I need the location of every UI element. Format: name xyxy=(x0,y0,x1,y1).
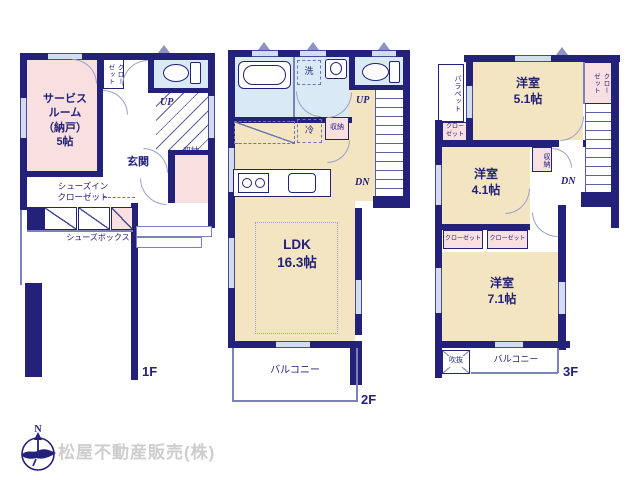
balcony-rail xyxy=(232,348,234,402)
door-gap xyxy=(559,140,583,147)
shoe-box xyxy=(111,207,133,230)
laundry-label: 洗 xyxy=(297,66,321,80)
up-label: UP xyxy=(356,95,369,106)
wall xyxy=(25,283,42,377)
window xyxy=(495,341,523,348)
window-marker xyxy=(158,45,170,53)
bathtub-icon xyxy=(243,65,286,85)
wall xyxy=(228,50,235,348)
dn-label: DN xyxy=(561,176,575,187)
floor-label-3f: 3F xyxy=(563,364,578,379)
wall xyxy=(581,192,618,207)
window xyxy=(435,165,442,205)
window-marker xyxy=(307,42,319,50)
closet-left-label: クロー ゼット xyxy=(442,124,468,140)
shoes-closet-label: シューズイン クローゼット xyxy=(44,181,122,203)
stairs-3f xyxy=(585,104,611,198)
balcony-rail xyxy=(356,348,358,401)
void-label: 吹抜 xyxy=(443,356,469,367)
closet-a-label: クローゼット xyxy=(443,236,483,246)
storage-3f-label: 収納 xyxy=(533,150,551,170)
shoe-box xyxy=(78,207,110,230)
wall xyxy=(27,171,103,177)
shoe-box xyxy=(44,207,77,230)
room-5-1-label: 洋室 5.1帖 xyxy=(498,76,558,112)
closet-label: クロー ゼット xyxy=(104,60,124,89)
entry-step xyxy=(136,237,202,248)
toilet-icon xyxy=(389,61,400,83)
window xyxy=(372,50,396,57)
wall xyxy=(558,205,566,350)
floor-label-1f: 1F xyxy=(142,364,157,379)
stove-icon xyxy=(238,173,269,193)
wall xyxy=(355,85,410,90)
storage-label: 収納 xyxy=(176,146,206,158)
balcony-label: バルコニー xyxy=(478,354,554,366)
toilet-icon xyxy=(362,63,389,81)
storage-1f xyxy=(175,155,208,203)
wall-line xyxy=(293,57,295,117)
window xyxy=(466,86,473,118)
service-room-label: サービス ルーム （納戸） 5帖 xyxy=(28,92,102,156)
window xyxy=(20,98,27,138)
window xyxy=(435,268,442,313)
balcony-rail xyxy=(232,400,358,402)
parapet-label: パラペット xyxy=(440,68,462,120)
wall-line xyxy=(27,230,133,232)
closet-tr-label: クロー ゼット xyxy=(586,64,610,102)
compass-icon: N xyxy=(12,423,64,477)
window xyxy=(208,96,215,138)
balcony-rail xyxy=(471,372,558,374)
kitchen-sink-icon xyxy=(288,173,316,193)
wall xyxy=(442,224,530,230)
floorplan-canvas: サービス ルーム （納戸） 5帖 クロー ゼット 玄関 収納 UP シューズイン… xyxy=(0,0,640,480)
wall xyxy=(435,120,442,378)
wall xyxy=(355,208,362,335)
dn-label: DN xyxy=(355,177,369,188)
sink-icon xyxy=(330,62,342,75)
window xyxy=(558,282,566,314)
window xyxy=(300,50,326,57)
room-4-1-label: 洋室 4.1帖 xyxy=(456,167,516,203)
fridge-label: 冷 xyxy=(297,125,322,139)
toilet-icon xyxy=(163,64,189,82)
wall xyxy=(208,53,215,228)
wall xyxy=(27,207,44,230)
window-marker xyxy=(258,42,270,50)
wall-line xyxy=(20,210,22,285)
window xyxy=(228,238,235,288)
storage-label: 収納 xyxy=(325,123,349,135)
window-marker xyxy=(556,47,568,55)
wall xyxy=(403,50,410,208)
window xyxy=(276,341,310,348)
wall xyxy=(373,196,410,208)
toilet-icon xyxy=(190,62,201,84)
wall xyxy=(154,88,208,93)
closet-b-label: クローゼット xyxy=(487,236,528,246)
shoes-box-label: シューズボックス xyxy=(58,233,138,244)
window xyxy=(515,55,551,62)
wall-line xyxy=(583,62,585,104)
balcony-label: バルコニー xyxy=(250,364,340,378)
entry-step xyxy=(136,226,212,237)
balcony-rail xyxy=(557,348,559,373)
compass-north-label: N xyxy=(34,424,42,435)
window-marker xyxy=(378,42,390,50)
entrance-label: 玄関 xyxy=(117,155,159,169)
ldk-label: LDK 16.3帖 xyxy=(247,236,347,280)
window xyxy=(355,280,362,314)
room-7-1-label: 洋室 7.1帖 xyxy=(472,276,532,312)
floor-label-2f: 2F xyxy=(361,392,376,407)
wall xyxy=(168,150,175,203)
up-label: UP xyxy=(160,97,173,108)
window xyxy=(252,50,278,57)
stairs-2f xyxy=(375,90,403,196)
company-name: 松屋不動産販売(株) xyxy=(58,438,215,463)
counter-dotted xyxy=(234,121,295,144)
